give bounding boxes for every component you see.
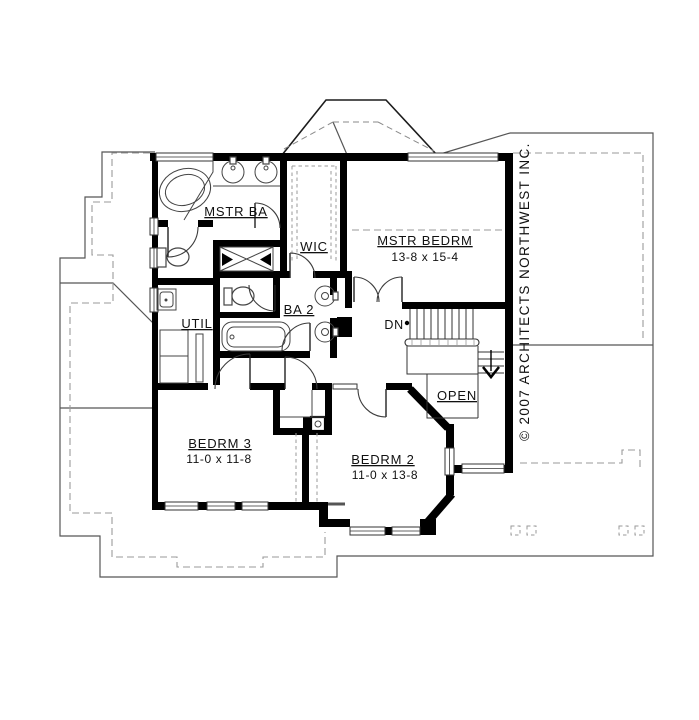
door-ba2-compartment: [249, 285, 275, 311]
room-label-bedrm2: BEDRM 2: [351, 452, 414, 467]
door-ba2: [282, 323, 310, 351]
room-label-util: UTIL: [181, 316, 212, 331]
door-bedrm3: [215, 354, 250, 389]
utility-sink: [157, 289, 176, 310]
stair-label-dn: DN: [384, 318, 404, 332]
dn-leader-dot: [405, 321, 409, 325]
door-wic: [290, 253, 315, 278]
roof-outline-layer: [60, 100, 653, 577]
room-label-wic: WIC: [300, 239, 328, 254]
double-door-mstr-bedrm: [354, 277, 402, 302]
room-label-mstr-bedrm: MSTR BEDRM: [377, 233, 472, 248]
ba2-bathtub: [222, 322, 290, 351]
washer-dryer: [160, 330, 203, 383]
room-label-mstr-ba: MSTR BA: [204, 204, 267, 219]
skylight-dashed-squares: [511, 526, 644, 535]
room-dims-bedrm2: 11-0 x 13-8: [352, 468, 418, 482]
door-bedrm2: [358, 389, 386, 417]
stair-treads-upper: [410, 309, 473, 340]
copyright-text: © 2007 ARCHITECTS NORTHWEST INC.: [517, 142, 532, 441]
floor-plan-drawing: MSTR BA WIC MSTR BEDRM 13-8 x 15-4 UTIL …: [0, 0, 699, 720]
stair-railing: [405, 339, 479, 346]
room-dims-mstr-bedrm: 13-8 x 15-4: [391, 250, 458, 264]
room-label-ba2: BA 2: [284, 302, 315, 317]
room-label-bedrm3: BEDRM 3: [188, 436, 251, 451]
linen-closet: [220, 247, 273, 271]
floor-plan-page: MSTR BA WIC MSTR BEDRM 13-8 x 15-4 UTIL …: [0, 0, 699, 720]
room-dims-bedrm3: 11-0 x 11-8: [186, 452, 252, 466]
master-toilet: [157, 248, 189, 267]
room-label-open: OPEN: [437, 388, 477, 403]
